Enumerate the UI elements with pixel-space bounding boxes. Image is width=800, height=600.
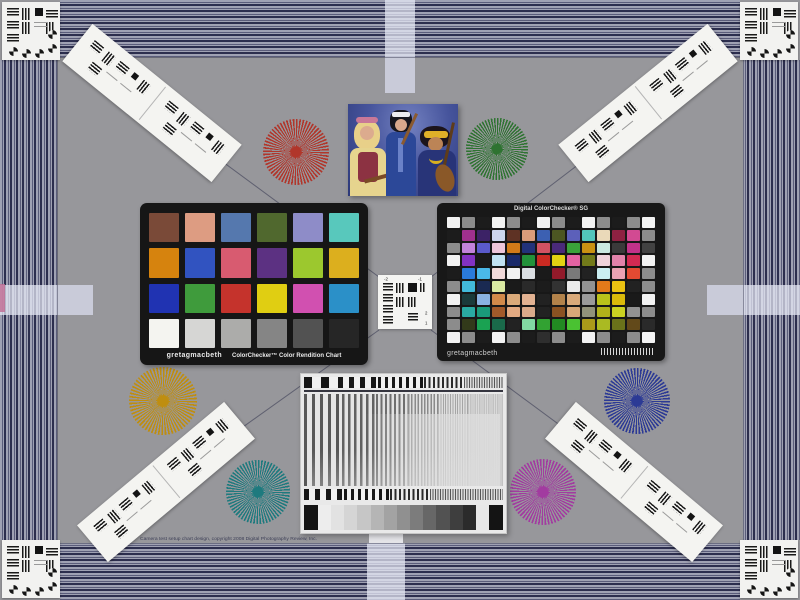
green-star — [466, 118, 528, 180]
color-patch — [537, 281, 550, 292]
color-patch — [447, 319, 460, 330]
color-patch — [293, 213, 323, 242]
color-patch — [537, 307, 550, 318]
color-patch — [642, 319, 655, 330]
color-patch — [552, 294, 565, 305]
color-patch — [522, 294, 535, 305]
gray-step — [357, 505, 370, 530]
color-patch — [507, 217, 520, 228]
photo-left-figure-face — [360, 126, 374, 140]
color-patch — [447, 255, 460, 266]
color-patch — [477, 255, 490, 266]
color-patch — [552, 332, 565, 343]
color-patch — [329, 213, 359, 242]
color-patch — [507, 294, 520, 305]
color-patch — [447, 294, 460, 305]
color-patch — [507, 243, 520, 254]
color-patch — [537, 268, 550, 279]
color-patch — [522, 243, 535, 254]
color-patch — [627, 255, 640, 266]
color-patch — [477, 217, 490, 228]
color-patch — [537, 294, 550, 305]
color-patch — [642, 332, 655, 343]
corner-resolution-card-bottom-right — [740, 540, 798, 598]
color-patch — [329, 248, 359, 277]
color-patch — [492, 268, 505, 279]
color-patch — [462, 255, 475, 266]
gray-step — [489, 505, 503, 530]
color-patch — [293, 284, 323, 313]
color-patch — [462, 307, 475, 318]
color-patch — [627, 307, 640, 318]
frequency-sweep-panel — [300, 373, 507, 534]
colorchecker-classic-label: gretagmacbethColorChecker™ Color Renditi… — [140, 344, 368, 362]
studio-photo-musicians — [348, 104, 458, 196]
color-patch — [257, 284, 287, 313]
color-patch — [221, 248, 251, 277]
color-patch — [612, 217, 625, 228]
color-patch — [492, 255, 505, 266]
color-patch — [612, 307, 625, 318]
center-target-label-minus2: -2 — [384, 277, 388, 281]
color-patch — [612, 332, 625, 343]
gray-step — [397, 505, 410, 530]
color-patch — [597, 243, 610, 254]
photo-middle-figure-face — [395, 119, 407, 131]
color-patch — [462, 319, 475, 330]
color-patch — [221, 213, 251, 242]
sg-barcode — [601, 348, 653, 355]
color-patch — [462, 230, 475, 241]
gold-star — [129, 367, 197, 435]
color-patch — [477, 243, 490, 254]
color-patch — [552, 281, 565, 292]
color-patch — [537, 319, 550, 330]
color-patch — [552, 268, 565, 279]
color-patch — [522, 268, 535, 279]
color-patch — [149, 213, 179, 242]
center-target-label-2: 2 — [425, 311, 427, 315]
color-patch — [612, 255, 625, 266]
corner-resolution-card-top-right — [740, 2, 798, 60]
color-patch — [462, 217, 475, 228]
colorchecker-classic-grid — [149, 213, 359, 348]
color-patch — [642, 243, 655, 254]
color-patch — [492, 332, 505, 343]
camera-test-chart-scene: gretagmacbethColorChecker™ Color Renditi… — [0, 0, 800, 600]
color-patch — [221, 284, 251, 313]
color-patch — [185, 284, 215, 313]
color-patch — [329, 284, 359, 313]
color-patch — [552, 243, 565, 254]
color-patch — [597, 230, 610, 241]
color-patch — [522, 332, 535, 343]
color-patch — [149, 284, 179, 313]
color-patch — [522, 217, 535, 228]
color-patch — [185, 248, 215, 277]
color-patch — [582, 319, 595, 330]
color-patch — [492, 294, 505, 305]
color-patch — [477, 319, 490, 330]
color-patch — [293, 248, 323, 277]
sweep-bottom-bars — [304, 489, 503, 500]
photo-right-figure-face — [428, 137, 443, 151]
color-patch — [447, 243, 460, 254]
color-patch — [627, 281, 640, 292]
grayscale-step-wedge — [304, 505, 503, 530]
color-patch — [537, 230, 550, 241]
gray-step — [463, 505, 476, 530]
color-patch — [447, 332, 460, 343]
gray-step — [410, 505, 423, 530]
center-target-label-1: 1 — [425, 321, 427, 325]
color-patch — [537, 243, 550, 254]
color-patch — [447, 307, 460, 318]
gray-step — [371, 505, 384, 530]
classic-title-text: ColorChecker™ Color Rendition Chart — [232, 353, 341, 359]
color-patch — [185, 213, 215, 242]
color-patch — [582, 230, 595, 241]
color-patch — [627, 294, 640, 305]
color-patch — [642, 268, 655, 279]
color-patch — [582, 294, 595, 305]
color-patch — [582, 217, 595, 228]
gray-step — [423, 505, 436, 530]
color-patch — [597, 307, 610, 318]
color-patch — [522, 255, 535, 266]
color-patch — [507, 307, 520, 318]
color-patch — [567, 255, 580, 266]
photo-left-figure-flower-crown — [356, 117, 378, 123]
color-patch — [627, 268, 640, 279]
color-patch — [507, 319, 520, 330]
color-patch — [477, 268, 490, 279]
color-patch — [612, 319, 625, 330]
color-patch — [642, 294, 655, 305]
color-patch — [567, 217, 580, 228]
color-patch — [522, 319, 535, 330]
color-patch — [612, 268, 625, 279]
color-patch — [597, 281, 610, 292]
color-patch — [552, 307, 565, 318]
color-patch — [507, 332, 520, 343]
color-patch — [537, 217, 550, 228]
color-patch — [462, 243, 475, 254]
color-patch — [462, 332, 475, 343]
corner-resolution-card-bottom-left — [2, 540, 60, 598]
color-patch — [567, 243, 580, 254]
color-patch — [597, 332, 610, 343]
color-patch — [477, 230, 490, 241]
color-patch — [447, 281, 460, 292]
teal-star — [226, 460, 290, 524]
color-patch — [597, 268, 610, 279]
color-patch — [642, 255, 655, 266]
color-patch — [567, 294, 580, 305]
color-patch — [582, 307, 595, 318]
color-patch — [582, 332, 595, 343]
gray-step — [384, 505, 397, 530]
color-patch — [597, 217, 610, 228]
color-patch — [597, 294, 610, 305]
digital-colorchecker-sg-chart: Digital ColorChecker® SG gretagmacbeth — [437, 203, 665, 361]
sweep-divider-line — [304, 390, 503, 392]
color-patch — [522, 307, 535, 318]
color-patch — [642, 217, 655, 228]
color-patch — [507, 255, 520, 266]
color-patch — [522, 281, 535, 292]
gray-step — [304, 505, 318, 530]
color-patch — [567, 268, 580, 279]
color-patch — [507, 281, 520, 292]
vertical-line-sweep — [304, 394, 503, 486]
color-patch — [627, 332, 640, 343]
photo-middle-figure-headband — [392, 112, 410, 117]
red-star — [263, 119, 329, 185]
sg-title-text: Digital ColorChecker® SG — [437, 206, 665, 212]
color-patch — [447, 217, 460, 228]
corner-resolution-card-top-left — [2, 2, 60, 60]
color-patch — [642, 230, 655, 241]
color-patch — [612, 281, 625, 292]
color-patch — [492, 217, 505, 228]
sg-patch-grid — [447, 217, 655, 343]
color-patch — [477, 294, 490, 305]
color-patch — [567, 307, 580, 318]
gray-step — [436, 505, 449, 530]
color-patch — [477, 307, 490, 318]
color-patch — [492, 230, 505, 241]
color-patch — [567, 230, 580, 241]
color-patch — [597, 319, 610, 330]
color-patch — [447, 230, 460, 241]
navy-star — [604, 368, 670, 434]
color-patch — [627, 243, 640, 254]
color-patch — [522, 230, 535, 241]
classic-brand-text: gretagmacbeth — [167, 352, 222, 359]
color-patch — [447, 268, 460, 279]
color-patch — [477, 281, 490, 292]
gray-step — [450, 505, 463, 530]
gray-step — [331, 505, 344, 530]
color-patch — [582, 243, 595, 254]
color-patch — [612, 294, 625, 305]
color-patch — [642, 307, 655, 318]
color-patch — [597, 255, 610, 266]
color-patch — [627, 230, 640, 241]
color-patch — [149, 248, 179, 277]
color-patch — [552, 255, 565, 266]
sg-brand-text: gretagmacbeth — [447, 350, 498, 357]
color-patch — [492, 307, 505, 318]
center-resolution-target: -2 -1 2 1 — [378, 275, 432, 329]
color-patch — [567, 319, 580, 330]
color-patch — [582, 281, 595, 292]
gray-step — [476, 505, 489, 530]
magenta-star — [510, 459, 576, 525]
color-patch — [257, 248, 287, 277]
color-patch — [492, 319, 505, 330]
color-patch — [477, 332, 490, 343]
photo-right-figure-necklace — [429, 152, 443, 164]
color-patch — [627, 217, 640, 228]
color-patch — [612, 243, 625, 254]
color-patch — [582, 255, 595, 266]
color-patch — [462, 281, 475, 292]
gray-step — [318, 505, 331, 530]
color-patch — [567, 281, 580, 292]
color-patch — [507, 230, 520, 241]
color-patch — [462, 294, 475, 305]
color-patch — [537, 255, 550, 266]
color-patch — [507, 268, 520, 279]
sweep-top-bars — [304, 377, 503, 388]
color-patch — [492, 281, 505, 292]
color-patch — [257, 213, 287, 242]
colorchecker-classic-chart: gretagmacbethColorChecker™ Color Renditi… — [140, 203, 368, 365]
center-target-label-minus1: -1 — [418, 277, 422, 281]
color-patch — [552, 319, 565, 330]
gray-step — [344, 505, 357, 530]
color-patch — [552, 217, 565, 228]
color-patch — [627, 319, 640, 330]
color-patch — [462, 268, 475, 279]
color-patch — [552, 230, 565, 241]
color-patch — [492, 243, 505, 254]
color-patch — [567, 332, 580, 343]
color-patch — [537, 332, 550, 343]
color-patch — [612, 230, 625, 241]
color-patch — [582, 268, 595, 279]
color-patch — [642, 281, 655, 292]
